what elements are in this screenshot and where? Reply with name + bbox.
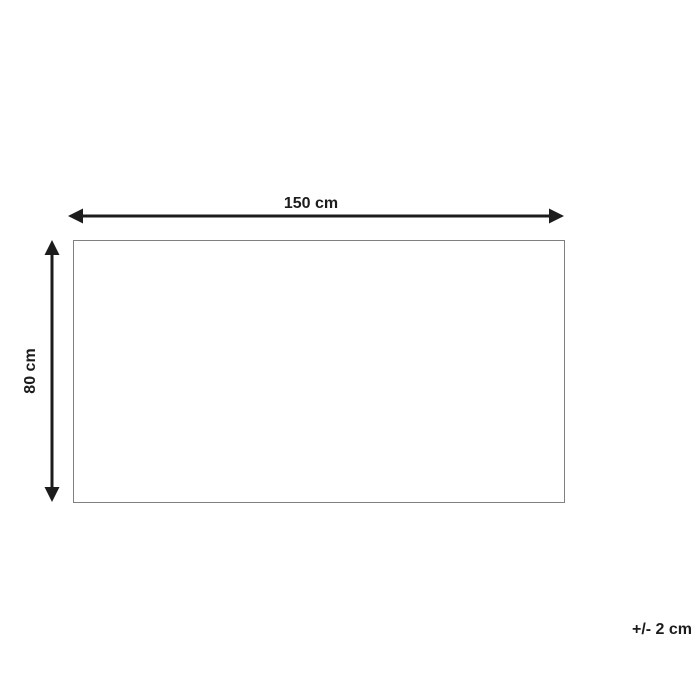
height-dimension-arrow <box>45 240 60 502</box>
diagram-svg: 150 cm 80 cm +/- 2 cm <box>0 0 700 700</box>
arrow-right-head-icon <box>549 209 564 224</box>
tolerance-label: +/- 2 cm <box>632 621 692 638</box>
height-dimension-label: 80 cm <box>22 348 39 393</box>
dimension-diagram: 150 cm 80 cm +/- 2 cm <box>0 0 700 700</box>
arrow-left-head-icon <box>68 209 83 224</box>
width-dimension-label: 150 cm <box>284 195 338 212</box>
arrow-down-head-icon <box>45 487 60 502</box>
product-outline-rectangle <box>74 241 565 503</box>
arrow-up-head-icon <box>45 240 60 255</box>
